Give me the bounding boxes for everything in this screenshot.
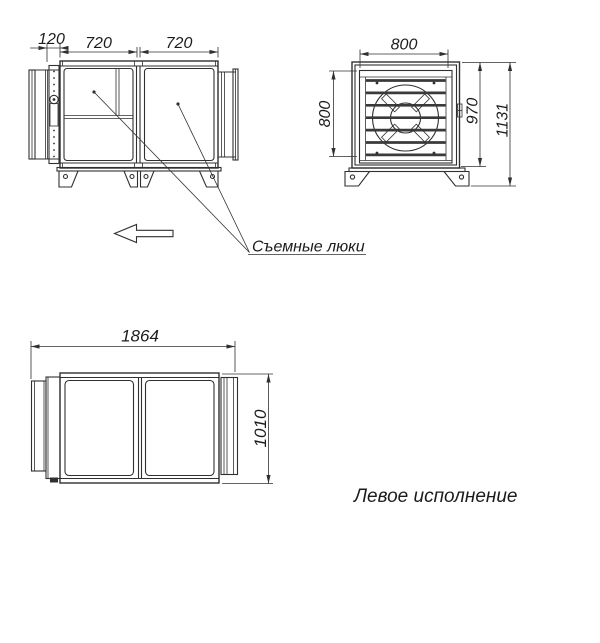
foot: [345, 172, 370, 187]
latch-detail: [50, 478, 58, 483]
dim-inlet-depth-label: 120: [38, 31, 65, 48]
front-view-casing: [352, 62, 460, 168]
side-view-dimensions: 120 720 720: [30, 31, 218, 62]
top-view-outlet-flange: [221, 378, 238, 475]
configuration-label: Левое исполнение: [352, 486, 518, 507]
side-view-feet: [57, 168, 221, 188]
removable-hatch-panel-1: [64, 69, 133, 161]
dim-opening-height-label: 800: [317, 101, 334, 128]
dim-body-height-label: 970: [465, 98, 482, 125]
dim-overall-length-label: 1864: [121, 327, 159, 346]
top-view: 1864 1010: [31, 327, 273, 484]
foot: [200, 171, 219, 187]
removable-hatches-label: Съемные люки: [252, 239, 365, 256]
technical-drawing-air-handling-unit: 120 720 720: [0, 0, 600, 643]
front-view: 800 800 970 1131: [317, 37, 516, 187]
damper-bolt-dots: [53, 71, 55, 158]
dim-section2-width-label: 720: [166, 35, 193, 52]
damper-actuator-plate: [50, 104, 58, 127]
louver-grille: [360, 77, 453, 161]
annotations: Съемные люки Левое исполнение: [252, 239, 518, 508]
foot: [124, 171, 138, 187]
side-view: 120 720 720: [29, 31, 366, 255]
top-panel-1: [65, 381, 134, 476]
dim-section1-width-label: 720: [85, 35, 112, 52]
side-view-inlet-damper: [29, 66, 60, 164]
dim-opening-width-label: 800: [391, 37, 418, 54]
removable-hatch-panel-2: [145, 69, 215, 161]
foot: [59, 171, 78, 187]
top-view-inlet-flange: [32, 377, 61, 483]
drawing-svg: 120 720 720: [0, 0, 600, 643]
foot: [444, 172, 469, 187]
top-panel-2: [146, 381, 215, 476]
top-view-dimensions: 1864 1010: [31, 327, 273, 484]
dim-overall-height-label: 1131: [495, 103, 512, 137]
front-view-feet: [345, 168, 469, 186]
foot: [141, 171, 155, 187]
side-view-outlet-flange: [218, 69, 238, 160]
dim-overall-width-label: 1010: [251, 409, 270, 447]
airflow-direction-arrow-icon: [115, 225, 174, 243]
side-view-casing: [60, 61, 218, 168]
top-view-casing: [60, 373, 219, 483]
